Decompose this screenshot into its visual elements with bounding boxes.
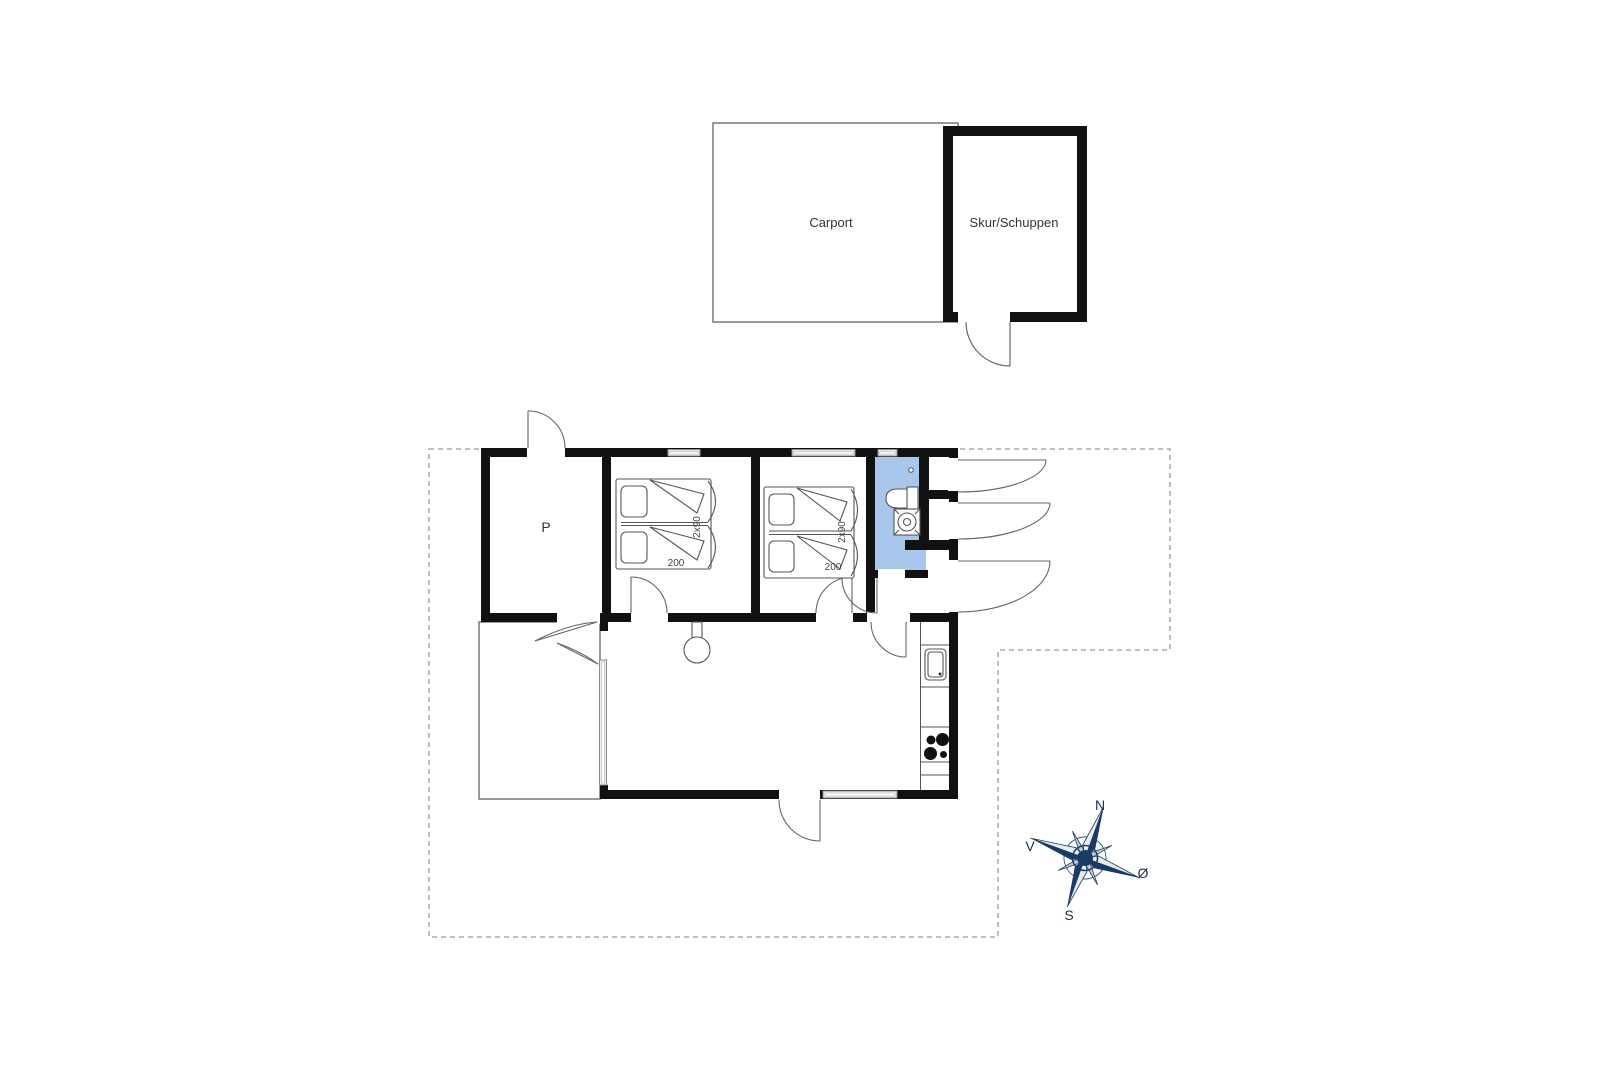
bedroom2-window (792, 450, 855, 457)
compass-rose: N S V Ø (1013, 786, 1159, 926)
hall-east-door (958, 561, 1050, 612)
storage-room-label: P (541, 519, 550, 535)
compass-east-label: Ø (1138, 865, 1149, 881)
living-south-window (823, 791, 897, 798)
bedroom1-window (668, 450, 700, 457)
stove (924, 733, 949, 760)
kitchen-sink (925, 649, 946, 680)
compass-south-label: S (1064, 907, 1073, 923)
floorplan-page: Carport Skur/Schuppen (0, 0, 1600, 1066)
bathroom-window (878, 450, 897, 457)
pillow (621, 486, 647, 517)
hall-living-door (871, 622, 906, 657)
terrace (479, 622, 600, 799)
carport: Carport (713, 123, 958, 322)
carport-label: Carport (809, 215, 853, 230)
bedroom1-door (631, 577, 667, 613)
bed2-length-label: 200 (825, 562, 842, 573)
bed1-width-label: 2x90 (692, 516, 703, 538)
sink (894, 509, 920, 535)
ceiling-lamp (684, 622, 710, 663)
closet2-door (958, 503, 1050, 539)
bed2-width-label: 2x90 (837, 521, 848, 543)
pillow (621, 532, 647, 563)
shed: Skur/Schuppen (943, 126, 1087, 366)
bathroom-fitting (909, 468, 914, 473)
pillow (769, 541, 794, 572)
shed-door (966, 322, 1010, 366)
bed1-length-label: 200 (668, 558, 685, 569)
floorplan-drawing: Carport Skur/Schuppen (0, 0, 1600, 1066)
living-west-window (600, 660, 607, 785)
compass-north-label: N (1095, 797, 1105, 813)
p-room-door (528, 411, 565, 448)
compass-west-label: V (1025, 838, 1035, 854)
kitchen-counter (921, 622, 950, 790)
toilet (886, 487, 918, 509)
pillow (769, 494, 794, 525)
south-entry-door (779, 800, 820, 841)
closet1-door (958, 460, 1046, 492)
shed-label: Skur/Schuppen (970, 215, 1059, 230)
